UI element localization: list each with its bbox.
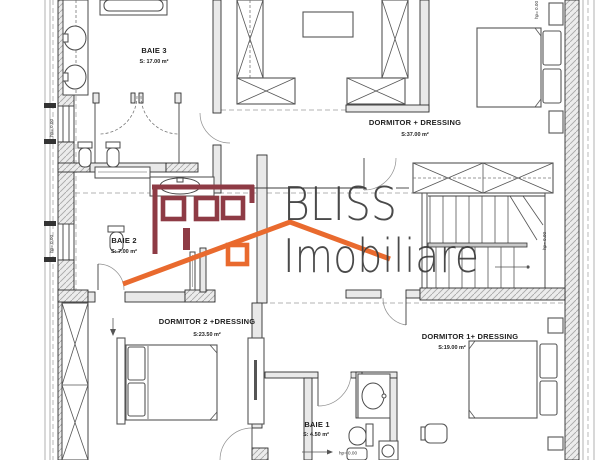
table xyxy=(303,12,353,37)
double-sink-counter xyxy=(63,0,88,95)
level-mark-left-upper: hp= 0.00 xyxy=(49,119,54,137)
pillow xyxy=(540,381,557,415)
entry-arrow xyxy=(110,318,116,336)
nightstand xyxy=(549,111,563,133)
toilet-icon xyxy=(78,142,92,167)
room-label-dormitor-1: DORMITOR 1+ DRESSING xyxy=(422,332,519,341)
wardrobe-row xyxy=(413,163,553,193)
door-dormitor-2 xyxy=(220,428,252,460)
level-mark-top-right: hp= 0.00 xyxy=(534,1,539,19)
toilet-icon xyxy=(366,424,373,446)
watermark-line1: BLISS xyxy=(283,177,397,231)
room-area-baie-2: S: 7.00 m² xyxy=(111,248,137,255)
pillow xyxy=(543,69,561,103)
door-baie1 xyxy=(318,373,351,406)
pillow xyxy=(540,344,557,378)
nightstand xyxy=(548,437,563,450)
cabinet-dormitor-2 xyxy=(248,338,264,424)
wardrobe-left-wall xyxy=(62,303,88,460)
door-arc xyxy=(200,113,230,143)
pillow xyxy=(128,347,145,380)
room-label-dormitor-dressing: DORMITOR + DRESSING xyxy=(369,118,461,127)
floor-plan: BAIE 3 S: 17.00 m² DORMITOR + DRESSING S… xyxy=(0,0,613,460)
floor-plan-svg: BAIE 3 S: 17.00 m² DORMITOR + DRESSING S… xyxy=(0,0,613,460)
room-area-baie-3: S: 17.00 m² xyxy=(139,58,168,65)
level-mark-left-lower: hp= 0.00 xyxy=(49,235,54,253)
pillow xyxy=(128,383,145,416)
toilet-icon xyxy=(108,226,124,232)
watermark-line2: Imobiliare xyxy=(283,229,479,283)
wardrobes-dressing xyxy=(237,0,408,104)
headboard xyxy=(117,338,125,424)
baie1-fixtures xyxy=(347,374,398,460)
chair xyxy=(421,424,447,443)
level-mark-bottom: hp= 0.00 xyxy=(339,451,357,456)
room-label-baie-1: BAIE 1 xyxy=(304,420,329,429)
door-dormitor-1 xyxy=(383,298,406,325)
room-label-baie-3: BAIE 3 xyxy=(141,46,166,55)
nightstand xyxy=(548,318,563,333)
toilet-icon xyxy=(349,427,366,445)
bidet-icon xyxy=(106,142,120,167)
bed-dormitor-dressing xyxy=(477,3,563,133)
room-label-baie-2: BAIE 2 xyxy=(111,236,136,245)
nightstand xyxy=(549,3,563,25)
room-label-dormitor-2: DORMITOR 2 +DRESSING xyxy=(159,317,256,326)
door-baie2 xyxy=(98,264,124,290)
baie2-fixtures xyxy=(108,177,214,290)
bathtub xyxy=(100,0,167,15)
room-area-dormitor-1: S:19.00 m² xyxy=(438,344,466,351)
shelf xyxy=(95,167,150,178)
room-area-baie-1: S: 4.50 m² xyxy=(303,431,329,438)
shower xyxy=(93,93,181,163)
pillow xyxy=(543,31,561,65)
room-area-dormitor-dressing: S:37.00 m² xyxy=(401,131,429,138)
level-mark-right: hp= 0.00 xyxy=(542,232,547,250)
room-area-dormitor-2: S:23.50 m² xyxy=(193,331,221,338)
bed-dormitor-2 xyxy=(117,338,217,424)
sink-icon xyxy=(362,383,384,409)
